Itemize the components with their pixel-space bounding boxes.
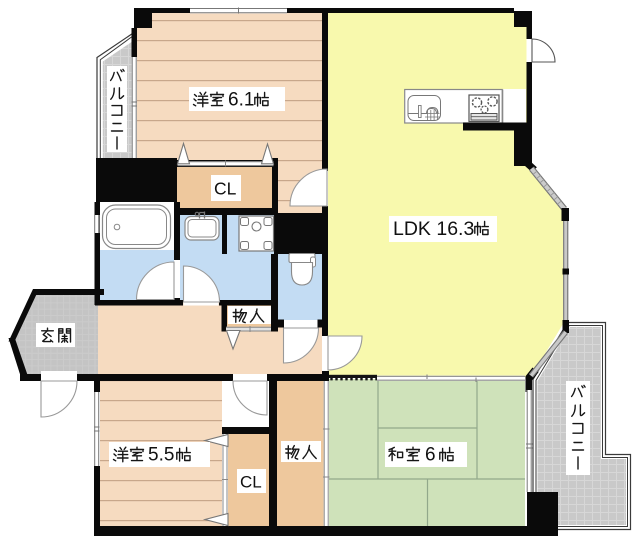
svg-text:LDK 16.3: LDK 16.3 — [393, 218, 474, 240]
svg-text:CL: CL — [240, 473, 262, 492]
svg-text:6: 6 — [425, 445, 436, 466]
svg-text:CL: CL — [214, 179, 237, 199]
svg-text:6.1: 6.1 — [228, 90, 254, 111]
svg-text:5.5: 5.5 — [148, 445, 174, 466]
